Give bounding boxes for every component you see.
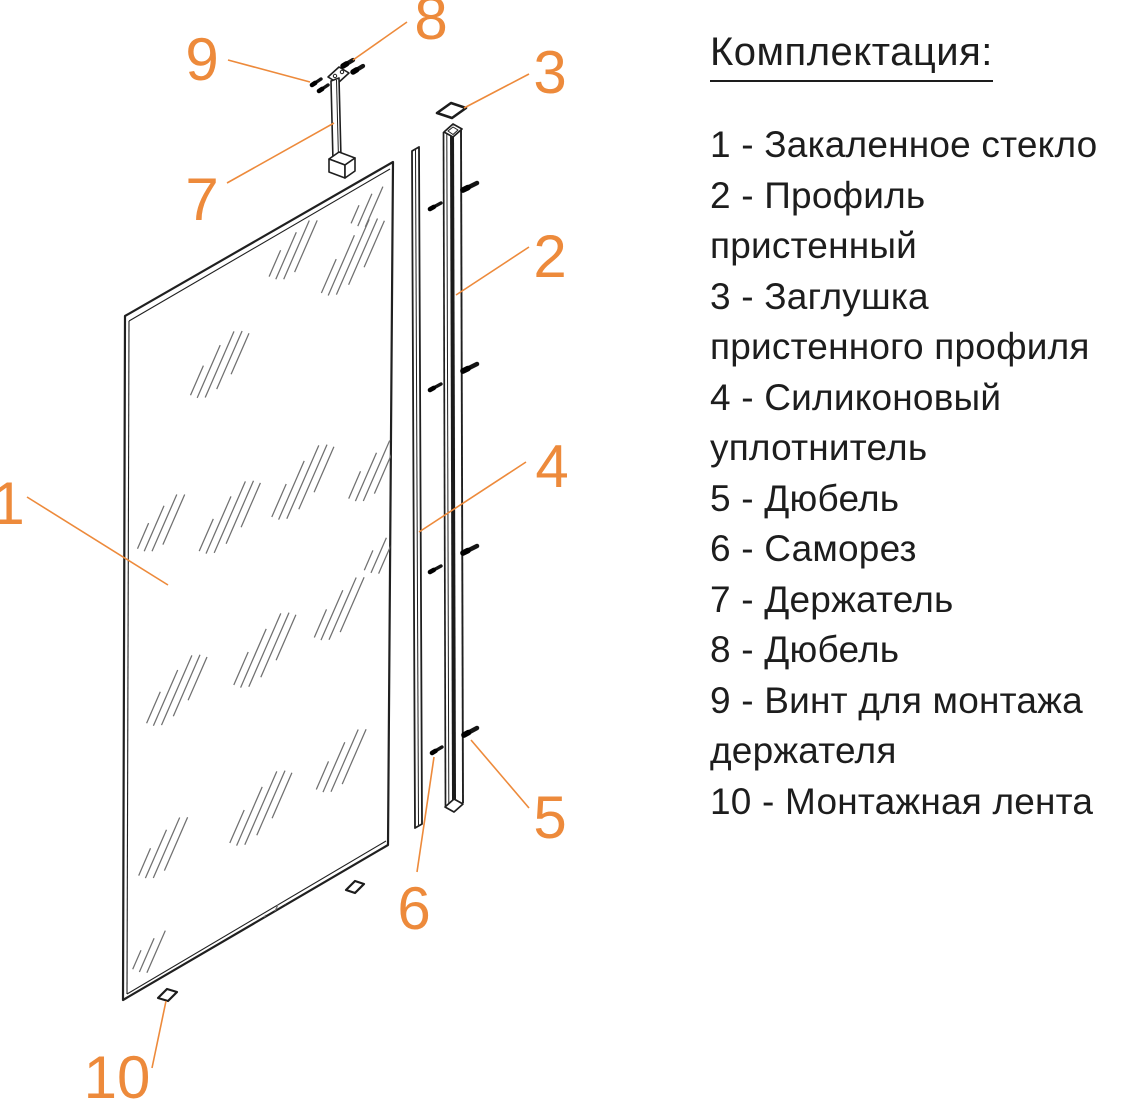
dowel [464,728,477,735]
callout-label-3: 3 [533,39,566,106]
self-tapping-screw [430,566,441,572]
holder-screw [319,85,328,91]
tempered-glass-panel [123,162,398,1000]
callout-label-1: 1 [0,470,25,537]
dowel [343,60,353,66]
parts-list-item-9: 9 - Винт для монтажа [710,676,1130,727]
parts-list-title: Комплектация: [710,30,993,82]
callout-label-5: 5 [533,784,566,851]
callout-label-2: 2 [533,223,566,290]
mounting-tape [346,881,364,893]
wall-profile-bottom-face [445,799,463,812]
callout-label-10: 10 [84,1044,151,1100]
callout-line-10 [152,1001,166,1068]
profile-end-cap [437,103,466,118]
exploded-view-diagram: 98732415610 [0,0,700,1100]
callout-label-4: 4 [535,433,568,500]
dowel [463,183,477,190]
parts-list-item-2: 2 - Профиль [710,171,1130,222]
callout-line-8 [353,22,407,60]
wall-profile [444,124,464,812]
callout-label-8: 8 [414,0,447,52]
glass-holder-bracket [328,67,355,178]
mounting-tape [158,989,177,1001]
self-tapping-screw [430,384,441,390]
parts-list-item-3: 3 - Заглушка [710,272,1130,323]
dowel [353,66,363,72]
parts-list-item-4: уплотнитель [710,423,1130,474]
self-tapping-screw [430,203,441,209]
callout-line-9 [228,60,310,82]
callout-line-3 [464,74,529,108]
parts-list-item-9: держателя [710,726,1130,777]
dowel [463,364,477,371]
callout-line-5 [471,740,529,808]
callout-label-7: 7 [185,166,218,233]
parts-list-item-6: 6 - Саморез [710,524,1130,575]
parts-list: Комплектация: 1 - Закаленное стекло2 - П… [710,30,1130,827]
callout-line-4 [419,462,526,532]
callout-label-9: 9 [185,26,218,93]
parts-list-item-2: пристенный [710,221,1130,272]
silicone-seal-strip [412,147,422,828]
parts-list-item-10: 10 - Монтажная лента [710,777,1130,828]
parts-list-item-1: 1 - Закаленное стекло [710,120,1130,171]
exploded-view-page: 98732415610 Комплектация: 1 - Закаленное… [0,0,1130,1100]
callout-label-6: 6 [397,875,430,942]
parts-list-item-4: 4 - Силиконовый [710,373,1130,424]
holder-screw [312,79,321,85]
parts-list-item-7: 7 - Держатель [710,575,1130,626]
parts-list-item-5: 5 - Дюбель [710,474,1130,525]
callout-line-7 [227,123,334,183]
callout-line-2 [456,247,529,295]
dowel [463,546,477,553]
parts-list-items: 1 - Закаленное стекло2 - Профильпристенн… [710,120,1130,827]
self-tapping-screw [432,747,442,753]
parts-list-item-3: пристенного профиля [710,322,1130,373]
parts-list-item-8: 8 - Дюбель [710,625,1130,676]
